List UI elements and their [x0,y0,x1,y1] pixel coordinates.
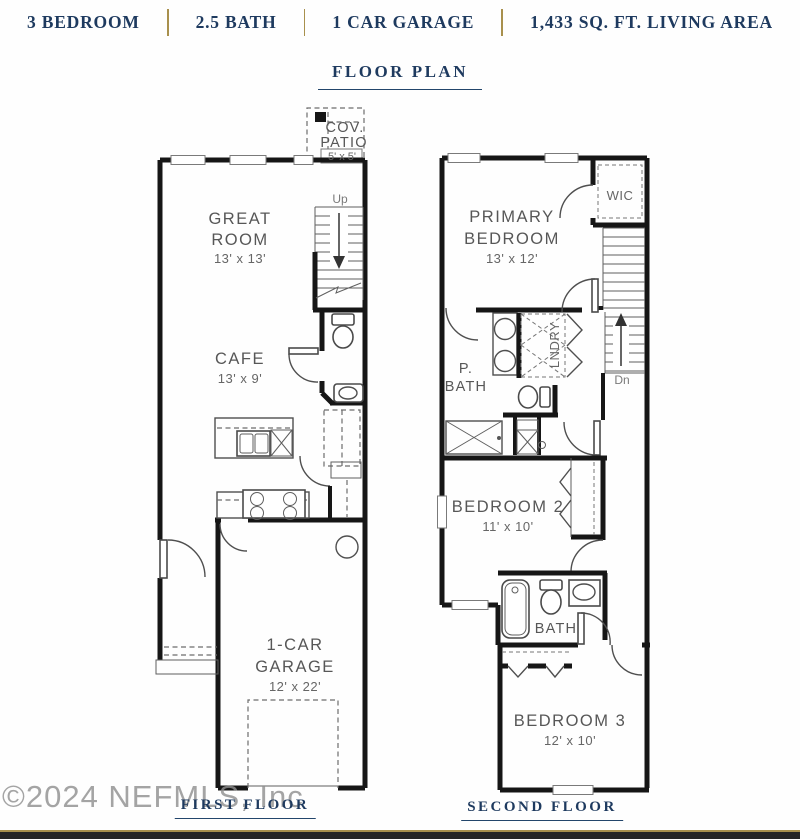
powder-toilet [332,314,354,348]
patio-door-marker [315,112,326,122]
powder-door [289,348,318,382]
cafe-dims: 13' x 9' [218,371,262,386]
kitchen-island [215,418,293,458]
window [545,154,578,163]
linen-closet [515,417,546,455]
first-floor-label: FIRST FLOOR [175,797,316,819]
laundry-label: LNDRY [547,322,562,368]
window [230,156,266,165]
patio-dims: 5' x 5' [328,151,356,163]
primary-bedroom-label-line1: PRIMARY [469,208,554,226]
bedroom3-door-arc [612,645,642,675]
great-room-dims: 13' x 13' [214,251,266,266]
window [438,496,447,528]
primary-shower [446,421,502,454]
bathtub [502,580,529,638]
powder-sink [334,384,363,402]
bedroom3-dims: 12' x 10' [544,733,596,748]
sf-lower-left-wall [442,605,498,645]
bath-toilet [540,580,562,614]
hall-door-arc [300,456,330,486]
primary-bath-label-line1: P. [459,361,473,377]
bedroom3-label: BEDROOM 3 [514,712,627,730]
laundry-closet: LNDRY [521,314,582,377]
primary-bedroom-door [562,279,598,312]
cafe-label: CAFE [215,350,265,368]
window [452,601,488,610]
bedroom2-closet [560,458,605,540]
primary-bedroom-dims: 13' x 12' [486,251,538,266]
primary-bath-door-arc [446,308,478,340]
great-room-label-line1: GREAT [208,210,271,228]
bedroom2-label: BEDROOM 2 [452,498,565,516]
bath-label: BATH [535,621,577,637]
water-heater [336,536,358,558]
kitchen-entry-door-arc [220,524,247,551]
stairs-down: Dn [592,228,645,387]
primary-bath-label-line2: BATH [445,379,487,395]
front-door [160,540,205,578]
primary-bath-toilet [519,386,551,408]
great-room-label-line2: ROOM [211,231,268,249]
window [171,156,205,165]
patio-label-line2: PATIO [320,135,367,151]
garage-door [248,700,338,788]
second-floor-label: SECOND FLOOR [461,799,623,821]
kitchen-range [217,490,309,520]
window [294,156,313,165]
window [553,786,593,795]
primary-bath-door [564,421,600,455]
walk-in-closet: WIC [560,158,647,225]
bath-sink [569,580,600,606]
porch-step [156,647,218,674]
garage-dims: 12' x 22' [269,679,321,694]
floor-plan-drawing: Up [0,0,800,839]
garage-label-line1: 1-CAR [266,636,323,654]
stair-down-label: Dn [614,373,629,387]
bedroom2-door-arc [571,540,603,572]
cabinet [331,462,361,478]
second-floor-plan: WIC Dn [438,154,651,795]
bedroom2-dims: 11' x 10' [482,519,533,534]
wic-label: WIC [607,188,634,203]
stairs-up: Up [315,192,363,310]
floor-plan-page: 3 BEDROOM 2.5 BATH 1 CAR GARAGE 1,433 SQ… [0,0,800,839]
bedroom3-closet [498,652,572,677]
primary-bath-vanity [493,313,517,375]
primary-bedroom-label-line2: BEDROOM [464,230,560,248]
stair-up-label: Up [332,192,348,206]
window [448,154,480,163]
bottom-border [0,830,800,839]
first-floor-plan: Up [156,108,368,788]
patio-label-line1: COV. [326,120,365,136]
garage-label-line2: GARAGE [255,658,335,676]
